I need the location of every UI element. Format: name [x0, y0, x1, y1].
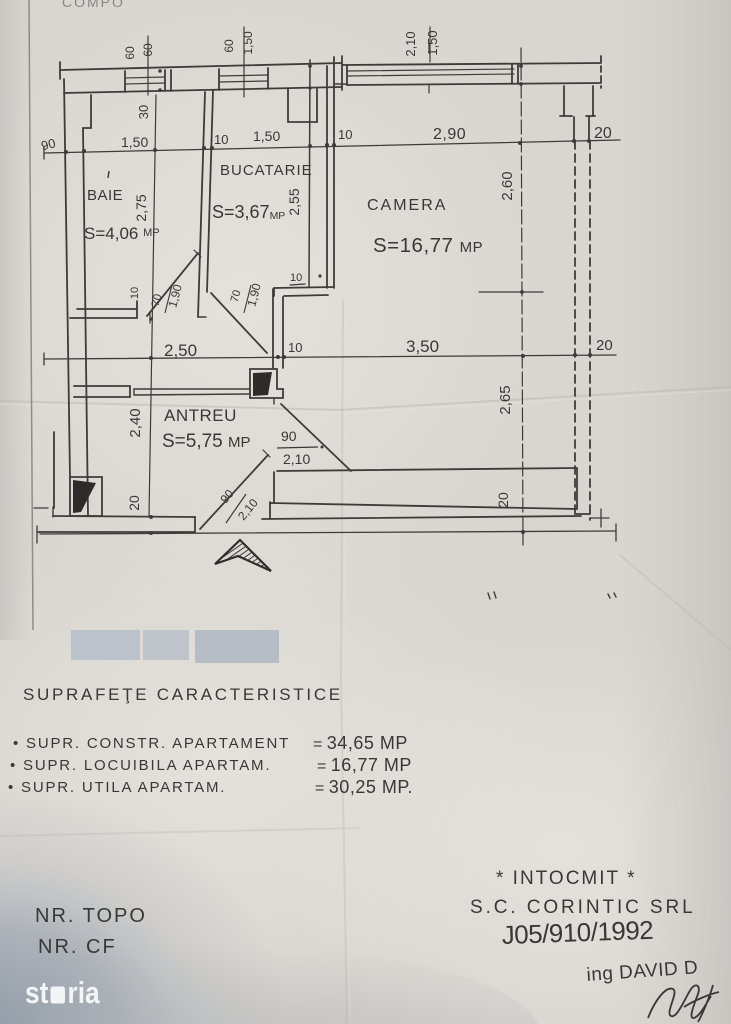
svg-text:BAIE: BAIE	[87, 187, 123, 204]
svg-text:90: 90	[281, 428, 297, 444]
svg-text:10: 10	[338, 127, 352, 142]
svg-text:NR. TOPO: NR. TOPO	[35, 905, 147, 927]
svg-text:J05/910/1992: J05/910/1992	[501, 915, 654, 950]
svg-text:3,50: 3,50	[406, 337, 439, 356]
svg-text:S=5,75 MP: S=5,75 MP	[162, 431, 251, 452]
svg-text:= 34,65 MP: = 34,65 MP	[313, 733, 408, 753]
svg-text:20: 20	[495, 492, 511, 508]
svg-text:st: st	[25, 976, 49, 1010]
svg-text:2,75: 2,75	[133, 194, 149, 221]
svg-text:NR. CF: NR. CF	[38, 936, 117, 958]
svg-text:10: 10	[129, 287, 141, 299]
svg-text:= 16,77 MP: = 16,77 MP	[317, 755, 412, 775]
svg-text:BUCATARIE: BUCATARIE	[220, 162, 313, 179]
svg-text:2,90: 2,90	[433, 126, 466, 143]
svg-text:1,50: 1,50	[241, 31, 255, 55]
svg-text:S.C. CORINTIC SRL: S.C. CORINTIC SRL	[470, 897, 696, 918]
svg-text:• SUPR. CONSTR. APARTAMENT: • SUPR. CONSTR. APARTAMENT	[13, 735, 290, 752]
svg-text:10: 10	[214, 132, 228, 147]
svg-text:2,65: 2,65	[497, 385, 514, 414]
svg-text:2,10: 2,10	[283, 451, 310, 467]
svg-text:1,50: 1,50	[121, 134, 148, 150]
svg-text:10: 10	[290, 272, 302, 284]
svg-text:SUPRAFEŢE CARACTERISTICE: SUPRAFEŢE CARACTERISTICE	[23, 685, 343, 704]
svg-text:CAMERA: CAMERA	[367, 197, 447, 214]
svg-text:20: 20	[594, 125, 612, 142]
svg-text:• SUPR. LOCUIBILA APARTAM.: • SUPR. LOCUIBILA APARTAM.	[10, 757, 271, 774]
svg-text:2,60: 2,60	[499, 171, 516, 200]
svg-text:• SUPR. UTILA APARTAM.: • SUPR. UTILA APARTAM.	[8, 779, 226, 796]
svg-text:20: 20	[126, 495, 142, 511]
svg-text:2,55: 2,55	[286, 188, 302, 215]
svg-text:COMPO: COMPO	[62, 0, 125, 10]
svg-text:60: 60	[222, 39, 236, 53]
svg-text:2,50: 2,50	[164, 341, 197, 360]
svg-text:= 30,25 MP.: = 30,25 MP.	[315, 777, 413, 797]
svg-text:1,50: 1,50	[253, 128, 280, 144]
svg-text:1,50: 1,50	[425, 30, 440, 55]
svg-text:* INTOCMIT *: * INTOCMIT *	[496, 868, 636, 889]
svg-text:20: 20	[596, 337, 613, 354]
svg-text:10: 10	[288, 340, 302, 355]
svg-text:60: 60	[141, 43, 155, 57]
svg-text:2,40: 2,40	[127, 408, 144, 437]
svg-text:30: 30	[136, 105, 151, 119]
svg-text:2,10: 2,10	[403, 31, 418, 56]
svg-text:60: 60	[123, 46, 137, 60]
svg-text:ANTREU: ANTREU	[164, 406, 237, 425]
svg-text:ria: ria	[68, 976, 101, 1010]
